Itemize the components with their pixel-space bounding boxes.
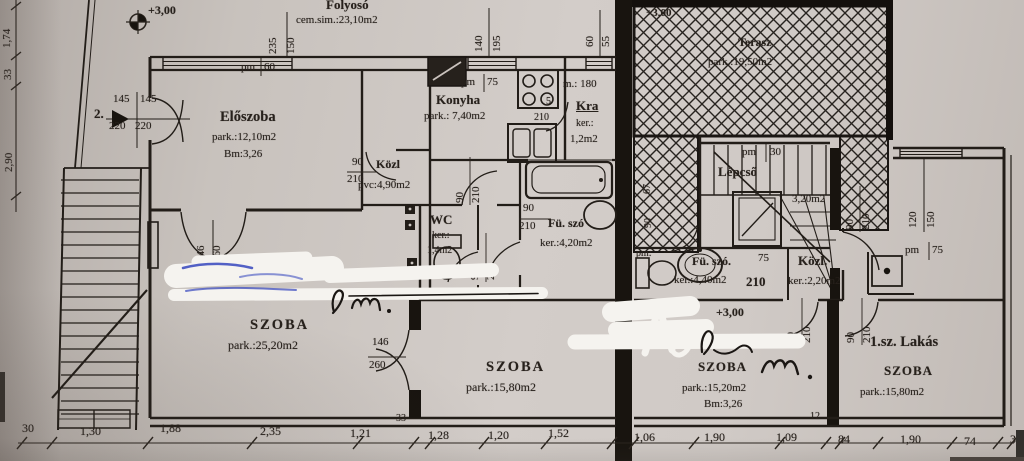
room-kra-ker: ker.: bbox=[576, 119, 594, 129]
dim-bottom: 74 bbox=[964, 435, 976, 447]
dim-220a: 220 bbox=[109, 121, 126, 132]
dim-pm-75r: 75 bbox=[932, 245, 943, 256]
blue-pen-marks bbox=[183, 264, 302, 291]
dim-90: 90 bbox=[644, 218, 654, 228]
dim-bottom: 12 bbox=[810, 412, 820, 422]
dim-bottom: 1,09 bbox=[776, 431, 797, 443]
flat-1-area: park.:15,80m2 bbox=[860, 387, 924, 398]
flat-1-room: SZOBA bbox=[884, 364, 933, 377]
room-szoba-right-bm: Bm:3,26 bbox=[704, 399, 742, 410]
level-label-terasz: +3,00 bbox=[646, 8, 672, 19]
room-szoba-kozep: SZOBA bbox=[486, 360, 545, 375]
room-eloszoba-bm: Bm:3,26 bbox=[224, 149, 262, 160]
dim-pm-label: pm bbox=[905, 245, 919, 256]
dim-220b: 220 bbox=[135, 121, 152, 132]
dim-door-90: 90 bbox=[845, 219, 856, 230]
dim-pm-colon: pm: bbox=[636, 249, 652, 259]
dim-bottom: 33 bbox=[396, 414, 406, 424]
flat-1-label: 1.sz. Lakás bbox=[870, 335, 938, 350]
kitchen-sink-icon bbox=[508, 124, 556, 162]
room-szoba-right-area: park.:15,20m2 bbox=[682, 383, 746, 394]
room-lepcso: Lépcső bbox=[718, 165, 757, 178]
dim-bottom: 1,28 bbox=[428, 429, 449, 441]
dim-door-90: 90 bbox=[352, 157, 363, 168]
dim-pm-75: 75 bbox=[487, 77, 498, 88]
room-wc-area: 1,4m2 bbox=[427, 246, 452, 256]
room-terasz: Terasz bbox=[738, 36, 772, 48]
room-kra-area: 1,2m2 bbox=[570, 134, 598, 145]
room-kozl-right-area: ker.:2,20m2 bbox=[788, 276, 841, 287]
dim-145a: 145 bbox=[113, 94, 130, 105]
room-kozl-left: Közl bbox=[376, 158, 400, 170]
room-furdo-left: Fü. szó bbox=[548, 217, 584, 229]
stairs-left bbox=[52, 0, 150, 430]
dim-146: 146 bbox=[196, 246, 207, 263]
dim-pm-label: pm bbox=[742, 147, 756, 158]
dim-pm-label: pm bbox=[461, 77, 475, 88]
stove-icon bbox=[518, 70, 558, 108]
washbasin-icon bbox=[584, 201, 616, 229]
dim-left-33: 33 bbox=[3, 69, 14, 80]
room-lepcso-area: 3,20m2 bbox=[792, 194, 825, 205]
room-furdo-right-num: 75 bbox=[758, 253, 769, 264]
room-konyha: Konyha bbox=[436, 93, 480, 106]
dim-260: 260 bbox=[212, 246, 223, 263]
room-kozl-left-area: pvc:4,90m2 bbox=[358, 180, 410, 191]
dim-door-210-big: 210 bbox=[746, 275, 766, 288]
room-furdo-right: Fü. szó. bbox=[692, 255, 731, 267]
room-terasz-area: park.:19,50m2 bbox=[708, 57, 772, 68]
floorplan-scan: +3,00 Folyosó cem.sim.:23,10m2 235 150 p… bbox=[0, 0, 1024, 461]
dim-door-210: 210 bbox=[534, 113, 549, 123]
room-wc-ker: ker.: bbox=[432, 231, 450, 241]
dim-235: 235 bbox=[268, 38, 279, 55]
level-label-right: +3,00 bbox=[716, 306, 744, 318]
dim-door-90: 90 bbox=[523, 203, 534, 214]
room-furdo-left-area: ker.:4,20m2 bbox=[540, 238, 593, 249]
dim-150: 150 bbox=[286, 38, 297, 55]
toilet-right-icon bbox=[636, 258, 649, 288]
dim-bottom: 1,88 bbox=[160, 422, 181, 434]
dim-door-90: 90 bbox=[470, 269, 481, 280]
dim-left-290: 2,90 bbox=[4, 153, 15, 172]
dim-260: 260 bbox=[369, 360, 386, 371]
party-wall bbox=[615, 0, 632, 461]
room-folyoso-area: cem.sim.:23,10m2 bbox=[296, 15, 378, 26]
room-kozl-right: Közl. bbox=[798, 254, 827, 267]
dim-bottom: 84 bbox=[838, 433, 850, 445]
dim-140: 140 bbox=[474, 36, 485, 53]
dim-150: 150 bbox=[926, 212, 937, 229]
level-marker-icon bbox=[130, 14, 146, 30]
room-eloszoba: Előszoba bbox=[220, 110, 276, 125]
dim-pm-label: pm bbox=[241, 62, 255, 73]
room-szoba-kozep-area: park.:15,80m2 bbox=[466, 381, 536, 393]
dim-bottom: 1,90 bbox=[900, 433, 921, 445]
dim-bottom: 30 bbox=[22, 422, 34, 434]
dim-bottom: 1,06 bbox=[634, 431, 655, 443]
room-wc: WC bbox=[430, 213, 452, 226]
room-kra: Kra bbox=[576, 99, 598, 112]
room-szoba-right: SZOBA bbox=[698, 360, 747, 373]
room-furdo-right-area: ker.:4,40m2 bbox=[674, 275, 727, 286]
dim-pm-60: 60 bbox=[264, 62, 275, 73]
room-konyha-area: park.: 7,40m2 bbox=[424, 111, 485, 122]
dim-55: 55 bbox=[601, 36, 612, 47]
dim-bottom: 1,21 bbox=[350, 427, 371, 439]
dim-146: 146 bbox=[372, 337, 389, 348]
dim-bottom: 1,20 bbox=[488, 429, 509, 441]
dim-door-210: 210 bbox=[861, 214, 872, 231]
dim-door-90: 90 bbox=[455, 192, 466, 203]
dim-120: 120 bbox=[908, 212, 919, 229]
level-label-left: +3,00 bbox=[148, 4, 176, 16]
dim-door-210: 210 bbox=[519, 221, 536, 232]
dim-bottom: 1,90 bbox=[704, 431, 725, 443]
dim-door-210: 210 bbox=[802, 327, 813, 344]
dim-door-210: 210 bbox=[486, 264, 497, 281]
dim-bottom: 1,30 bbox=[80, 425, 101, 437]
dim-145b: 145 bbox=[140, 94, 157, 105]
dim-door-210: 210 bbox=[471, 187, 482, 204]
room-eloszoba-area: park.:12,10m2 bbox=[212, 132, 276, 143]
dim-door-5: 5 bbox=[546, 97, 551, 107]
dim-67: 67 bbox=[643, 184, 653, 194]
whiteout-a-stroke bbox=[645, 307, 672, 353]
handwriting-left bbox=[333, 291, 538, 313]
dim-bottom: 1,52 bbox=[548, 427, 569, 439]
dim-bottom: 2,35 bbox=[260, 425, 281, 437]
bathtub-icon bbox=[526, 162, 612, 198]
dim-left-174: 1,74 bbox=[2, 29, 13, 48]
dim-pm-30: 30 bbox=[770, 147, 781, 158]
dim-m180: m.: 180 bbox=[563, 79, 597, 90]
room-szoba-nagy: SZOBA bbox=[250, 318, 309, 333]
room-szoba-nagy-area: park.:25,20m2 bbox=[228, 339, 298, 351]
dim-60: 60 bbox=[585, 36, 596, 47]
dim-bottom: 3 bbox=[1010, 433, 1016, 445]
whiteout-right bbox=[575, 306, 798, 355]
room-folyoso: Folyosó bbox=[326, 0, 369, 11]
dim-195: 195 bbox=[492, 36, 503, 53]
dim-door-90: 90 bbox=[846, 332, 857, 343]
dim-door-90: 90 bbox=[786, 332, 797, 343]
entrance-number: 2. bbox=[94, 107, 104, 120]
